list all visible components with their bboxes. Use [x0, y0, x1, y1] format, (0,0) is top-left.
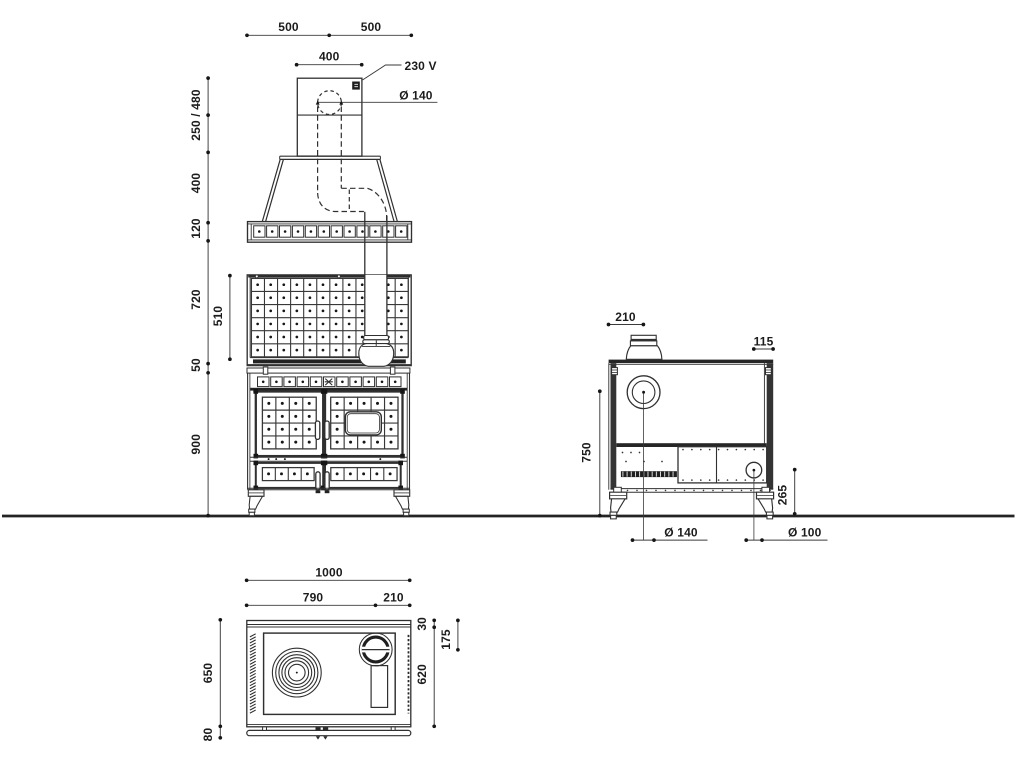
- svg-text:115: 115: [754, 334, 774, 348]
- svg-text:1000: 1000: [315, 566, 342, 580]
- svg-text:400: 400: [319, 49, 340, 63]
- svg-text:30: 30: [415, 617, 429, 631]
- svg-text:900: 900: [189, 434, 203, 455]
- svg-text:510: 510: [211, 306, 225, 327]
- svg-text:50: 50: [189, 358, 203, 372]
- svg-text:500: 500: [361, 20, 382, 34]
- svg-text:620: 620: [415, 664, 429, 685]
- svg-text:Ø 100: Ø 100: [788, 526, 822, 540]
- svg-text:Ø 140: Ø 140: [664, 526, 698, 540]
- svg-text:265: 265: [775, 485, 789, 506]
- svg-text:400: 400: [189, 173, 203, 194]
- svg-text:120: 120: [189, 218, 203, 239]
- svg-text:175: 175: [439, 629, 453, 650]
- svg-text:250 / 480: 250 / 480: [189, 89, 203, 141]
- svg-text:750: 750: [579, 442, 593, 463]
- svg-text:80: 80: [201, 728, 215, 742]
- svg-text:650: 650: [201, 663, 215, 684]
- svg-text:210: 210: [615, 310, 636, 324]
- svg-text:790: 790: [303, 590, 324, 604]
- svg-text:500: 500: [278, 20, 299, 34]
- svg-text:230 V: 230 V: [405, 59, 437, 73]
- svg-text:Ø 140: Ø 140: [399, 89, 433, 103]
- svg-text:210: 210: [383, 590, 404, 604]
- svg-text:720: 720: [189, 289, 203, 310]
